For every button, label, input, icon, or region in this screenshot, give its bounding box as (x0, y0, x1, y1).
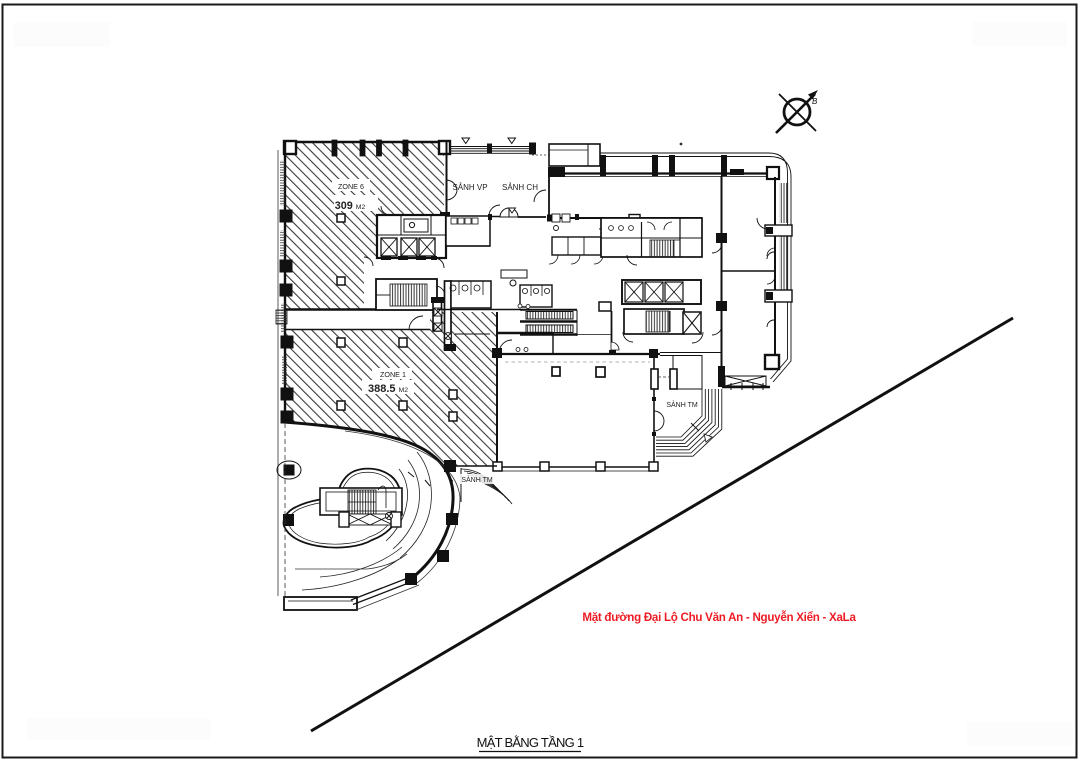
svg-text:Mặt đường Đại Lộ Chu Văn An -: Mặt đường Đại Lộ Chu Văn An - Nguyễn Xiể… (582, 611, 856, 624)
svg-text:SẢNH CH: SẢNH CH (502, 183, 538, 192)
svg-text:ZONE 6: ZONE 6 (338, 182, 364, 191)
svg-text:SẢNH VP: SẢNH VP (452, 183, 487, 192)
svg-text:MẬT BẰNG TẦNG 1: MẬT BẰNG TẦNG 1 (477, 735, 584, 750)
svg-text:SẢNH TM: SẢNH TM (461, 475, 493, 484)
svg-text:SẢNH TM: SẢNH TM (666, 400, 698, 409)
svg-text:B: B (812, 97, 818, 106)
svg-text:ZONE 1: ZONE 1 (380, 370, 406, 379)
